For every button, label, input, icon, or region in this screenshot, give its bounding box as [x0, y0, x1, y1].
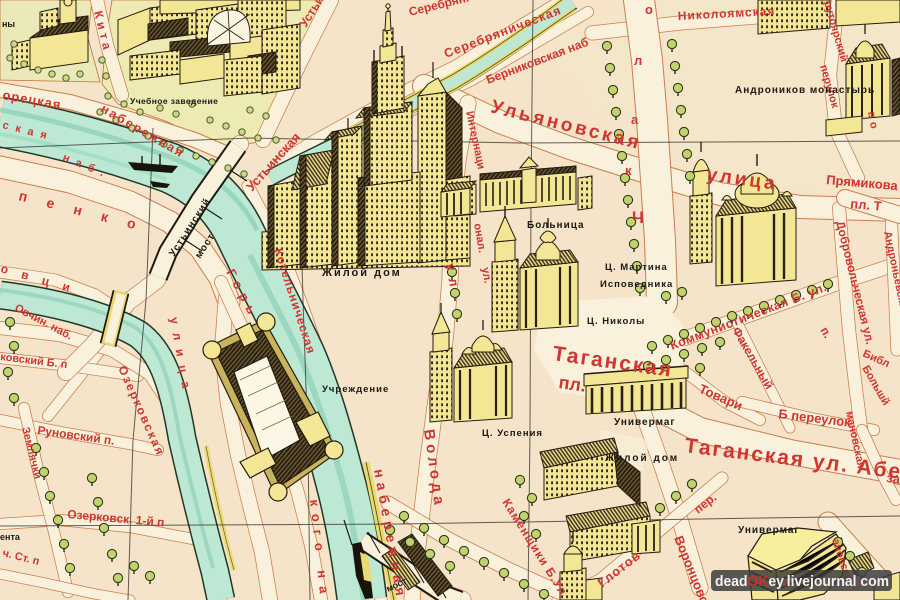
- svg-text:Ч: Ч: [632, 208, 644, 227]
- svg-text:ента: ента: [0, 532, 21, 542]
- svg-text:Больница: Больница: [527, 220, 585, 231]
- svg-text:Учебное заведение: Учебное заведение: [130, 96, 218, 106]
- svg-text:пл.: пл.: [557, 372, 587, 396]
- svg-text:Универмаг: Универмаг: [738, 525, 800, 536]
- svg-text:Жилой дом: Жилой дом: [604, 453, 679, 464]
- svg-text:deadOKey.livejournal.com: deadOKey.livejournal.com: [715, 573, 889, 590]
- svg-text:к: к: [625, 163, 632, 178]
- svg-text:Жилой дом: Жилой дом: [321, 267, 402, 279]
- svg-text:а: а: [631, 112, 639, 127]
- svg-text:Ц. Мартина: Ц. Мартина: [605, 262, 668, 273]
- svg-text:ны: ны: [2, 19, 15, 29]
- svg-text:Андроников монастырь: Андроников монастырь: [735, 85, 875, 96]
- svg-text:Ц. Николы: Ц. Николы: [587, 316, 645, 327]
- svg-text:л: л: [634, 53, 642, 68]
- svg-text:Универмаг: Универмаг: [614, 417, 676, 428]
- svg-text:Учреждение: Учреждение: [322, 384, 389, 395]
- svg-text:за: за: [886, 470, 900, 487]
- svg-text:Исповедника: Исповедника: [600, 279, 673, 290]
- svg-text:пл. Т: пл. Т: [850, 196, 883, 214]
- svg-text:о: о: [645, 2, 653, 17]
- svg-text:Ц. Успения: Ц. Успения: [482, 428, 543, 439]
